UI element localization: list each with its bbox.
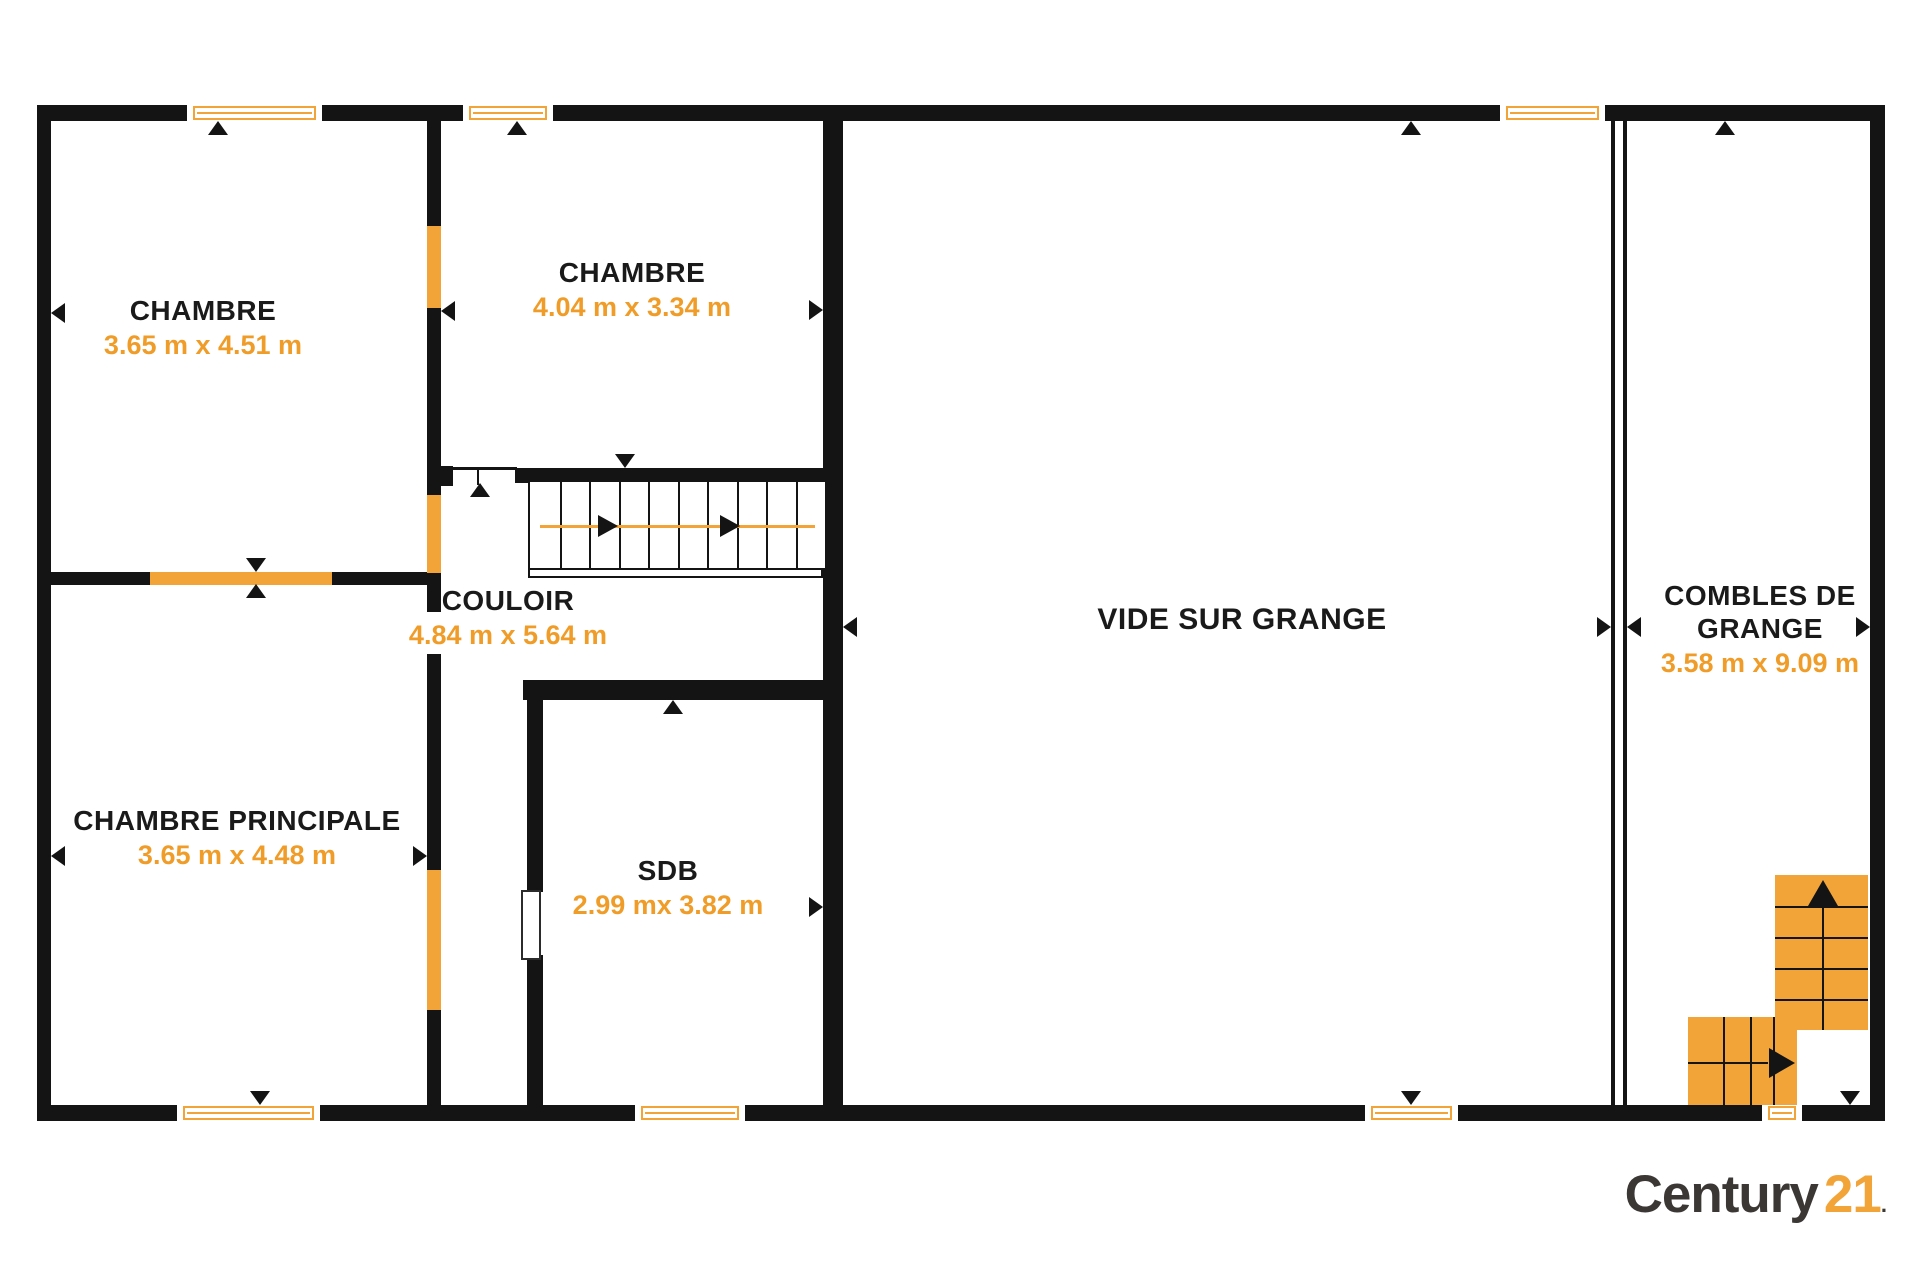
room-label-couloir: COULOIR 4.84 m x 5.64 m [409, 584, 607, 651]
wall [523, 680, 843, 700]
dimension-pointer-icon [809, 897, 823, 917]
dimension-pointer-icon [208, 121, 228, 135]
room-name: VIDE SUR GRANGE [1097, 603, 1386, 636]
window-glass-line [197, 112, 312, 114]
wall [452, 467, 517, 470]
door-opening-segment [427, 495, 441, 573]
stair-direction-line [540, 525, 815, 528]
dimension-pointer-icon [1715, 121, 1735, 135]
stair-center-line [1822, 903, 1824, 1030]
logo-dot: . [1881, 1192, 1886, 1217]
room-label-vide-sur-grange: VIDE SUR GRANGE [1097, 603, 1386, 638]
window-frame [469, 106, 547, 120]
wall [515, 468, 823, 483]
door-opening-segment [427, 226, 441, 308]
window-glass-line [645, 1112, 735, 1114]
stair-direction-arrow-icon [720, 515, 740, 537]
window-frame [641, 1106, 739, 1120]
stair-right-arrow-icon [1769, 1048, 1795, 1078]
dimension-pointer-icon [470, 483, 490, 497]
window-frame [193, 106, 316, 120]
room-label-chambre-1: CHAMBRE 3.65 m x 4.51 m [104, 294, 302, 361]
stair-center-line [1688, 1062, 1768, 1064]
wall [1611, 120, 1615, 1106]
dimension-pointer-icon [1401, 1091, 1421, 1105]
dimension-pointer-icon [250, 1091, 270, 1105]
dimension-pointer-icon [441, 301, 455, 321]
wall [1623, 120, 1627, 1106]
dimension-pointer-icon [246, 558, 266, 572]
dimension-pointer-icon [615, 454, 635, 468]
dimension-pointer-icon [1840, 1091, 1860, 1105]
window [635, 1105, 745, 1121]
stair-tread-line [1750, 1017, 1752, 1105]
room-name: SDB [573, 854, 764, 887]
room-name: CHAMBRE PRINCIPALE [73, 804, 400, 837]
window-glass-line [1375, 1112, 1448, 1114]
room-dimensions: 2.99 mx 3.82 m [573, 889, 764, 921]
room-dimensions: 3.65 m x 4.51 m [104, 329, 302, 361]
logo-brand-text: Century [1625, 1165, 1818, 1224]
dimension-pointer-icon [413, 846, 427, 866]
door-leaf [521, 890, 541, 960]
century21-logo: Century21. [1625, 1164, 1886, 1225]
window-frame [1371, 1106, 1452, 1120]
staircase-foot-line [528, 568, 823, 578]
window [1762, 1105, 1802, 1121]
logo-number-text: 21 [1824, 1165, 1881, 1224]
dimension-pointer-icon [809, 300, 823, 320]
window-glass-line [187, 1112, 310, 1114]
window [177, 1105, 320, 1121]
dimension-pointer-icon [507, 121, 527, 135]
dimension-pointer-icon [51, 303, 65, 323]
stair-tread-line [1723, 1017, 1725, 1105]
window [187, 105, 322, 121]
wall [823, 118, 843, 1108]
dimension-pointer-icon [663, 700, 683, 714]
wall [527, 955, 543, 1107]
window-glass-line [1772, 1112, 1792, 1114]
room-dimensions: 4.04 m x 3.34 m [533, 291, 731, 323]
room-name: CHAMBRE [104, 294, 302, 327]
floor-plan: CHAMBRE 3.65 m x 4.51 m CHAMBRE 4.04 m x… [0, 0, 1920, 1280]
room-name: COMBLES DE GRANGE [1635, 579, 1885, 645]
window [463, 105, 553, 121]
room-label-sdb: SDB 2.99 mx 3.82 m [573, 854, 764, 921]
room-label-chambre-principale: CHAMBRE PRINCIPALE 3.65 m x 4.48 m [73, 804, 400, 871]
room-dimensions: 3.58 m x 9.09 m [1635, 647, 1885, 679]
dimension-pointer-icon [51, 846, 65, 866]
dimension-pointer-icon [1401, 121, 1421, 135]
wall [37, 105, 51, 1121]
stair-direction-arrow-icon [598, 515, 618, 537]
room-label-chambre-2: CHAMBRE 4.04 m x 3.34 m [533, 256, 731, 323]
room-name: COULOIR [409, 584, 607, 617]
wall [527, 700, 543, 892]
room-dimensions: 4.84 m x 5.64 m [409, 619, 607, 651]
dimension-pointer-icon [1597, 617, 1611, 637]
dimension-pointer-icon [843, 617, 857, 637]
room-label-combles-de-grange: COMBLES DE GRANGE 3.58 m x 9.09 m [1635, 579, 1885, 679]
window-glass-line [473, 112, 543, 114]
window-glass-line [1510, 112, 1595, 114]
door-opening-segment [150, 572, 332, 585]
dimension-pointer-icon [246, 584, 266, 598]
window [1365, 1105, 1458, 1121]
room-name: CHAMBRE [533, 256, 731, 289]
window-frame [1506, 106, 1599, 120]
window-frame [1768, 1106, 1796, 1120]
door-opening-segment [427, 870, 441, 1010]
window-frame [183, 1106, 314, 1120]
window [1500, 105, 1605, 121]
room-dimensions: 3.65 m x 4.48 m [73, 839, 400, 871]
stair-up-arrow-icon [1808, 880, 1838, 906]
